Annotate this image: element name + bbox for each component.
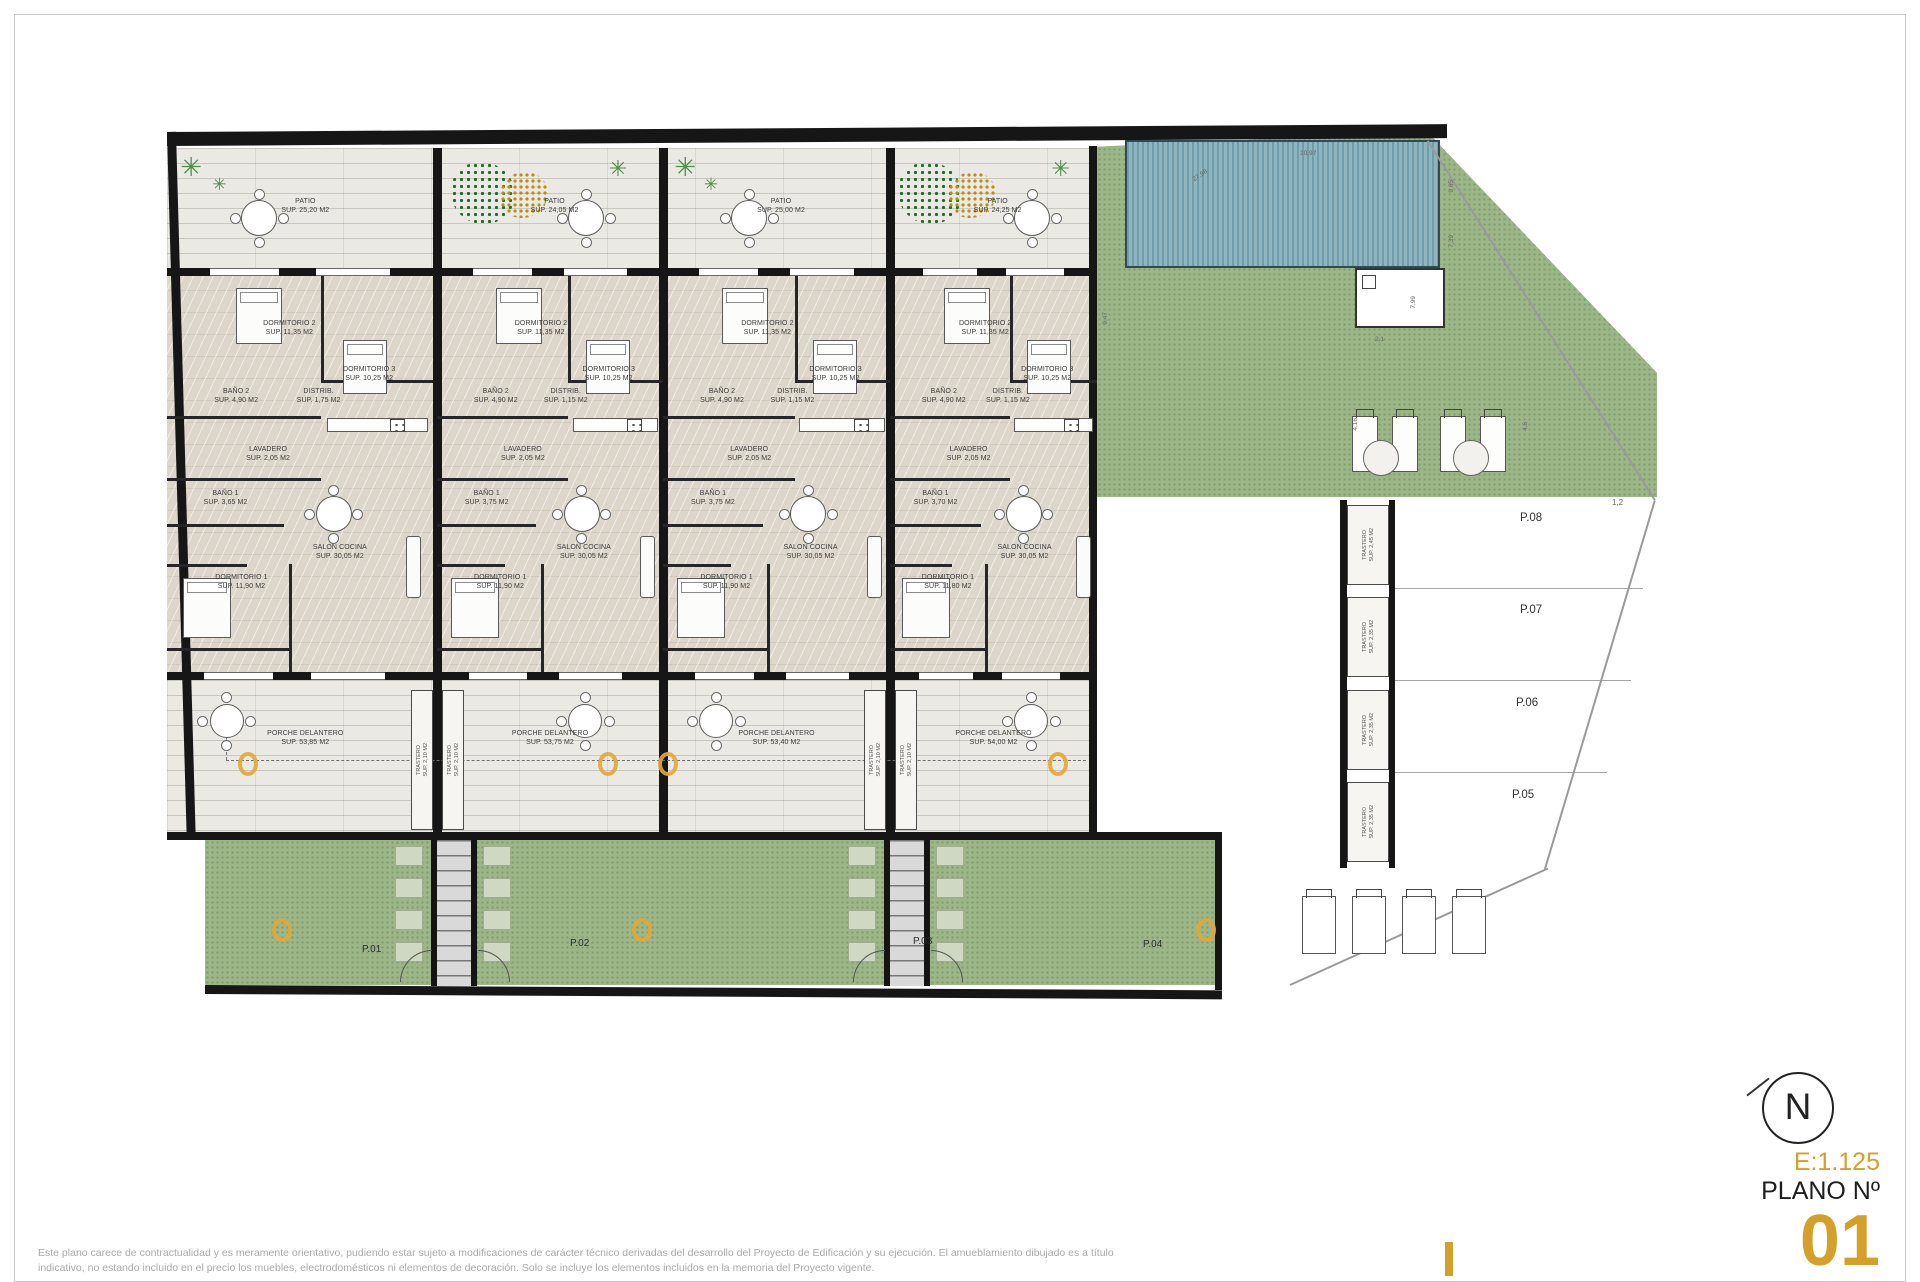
hob-icon [390,419,405,432]
hob-icon [627,419,642,432]
room-name: PATIO [281,198,329,207]
window [1002,672,1060,680]
garden-light-icon [1196,918,1216,942]
stepping-stone [395,846,423,866]
room-sup: SUP. 30,05 M2 [997,553,1051,562]
room-name: SALON COCINA [557,544,611,553]
room-sup: SUP. 4,90 M2 [214,397,258,406]
room-sup: SUP. 11,35 M2 [263,329,315,338]
sofa-icon [1076,536,1091,598]
stepping-stone [483,878,511,898]
trastero-label: TRASTERO [416,745,422,775]
kitchen-counter-icon [327,418,428,432]
dim-label: 7,39 [1448,235,1455,248]
stepping-stone [848,878,876,898]
trastero-sup: SUP. 2,35 M2 [1369,620,1375,654]
parking-spot-label: P.08 [1520,512,1542,524]
unit-p02: ✳ PATIOSUP. 24,05 M2 DORMITORIO 2SUP. 11… [437,148,663,832]
room-sup: SUP. 11,35 M2 [515,329,567,338]
window [919,672,973,680]
trastero-cell: TRASTEROSUP. 2,10 M2 [442,690,464,830]
logo-bar [1445,1242,1453,1276]
palm-icon: ✳ [674,154,696,180]
plot-wall-bottom [205,985,1222,999]
compass-north-icon: N [1762,1072,1834,1144]
scale-label: E:1.125 [1660,1148,1880,1177]
room-sup: SUP. 1,75 M2 [297,397,341,406]
parking-row-line [1395,588,1643,589]
garden-light-icon [632,918,652,942]
room-sup: SUP. 11,90 M2 [700,583,752,592]
room-sup: SUP. 10,25 M2 [809,375,861,384]
palm-icon: ✳ [704,176,718,193]
dim-label: 10,97 [1300,150,1317,158]
trastero-cell: TRASTEROSUP. 2,35 M2 [1347,597,1389,677]
palm-icon: ✳ [609,158,627,180]
stepping-stone [848,910,876,930]
room-name: LAVADERO [947,446,991,455]
room-sup: SUP. 2,05 M2 [947,455,991,464]
room-name: PORCHE DELANTERO [955,730,1031,739]
room-name: BAÑO 2 [922,388,966,397]
room-name: BAÑO 2 [214,388,258,397]
room-sup: SUP. 2,05 M2 [246,455,290,464]
room-sup: SUP. 4,90 M2 [474,397,518,406]
room-name: LAVADERO [501,446,545,455]
room-name: DISTRIB. [770,388,814,397]
stepping-stone [483,910,511,930]
room-sup: SUP. 54,00 M2 [955,739,1031,748]
room-sup: SUP. 10,25 M2 [583,375,635,384]
trastero-label: TRASTERO [1362,530,1368,560]
trastero-label: TRASTERO [900,745,906,775]
plano-number: 01 [1660,1206,1880,1276]
window [311,672,385,680]
garden-light-icon [598,752,618,776]
sofa-icon [867,536,882,598]
room-name: SALON COCINA [997,544,1051,553]
room-sup: SUP. 11,35 M2 [741,329,793,338]
palm-icon: ✳ [180,154,202,180]
parking-spot-label: P.07 [1520,604,1542,616]
room-sup: SUP. 2,05 M2 [501,455,545,464]
stepping-stone [483,846,511,866]
trastero-label: TRASTERO [1362,807,1368,837]
trastero-label: TRASTERO [869,745,875,775]
trastero-sup: SUP. 2,10 M2 [907,743,913,777]
room-sup: SUP. 25,20 M2 [281,207,329,216]
room-sup: SUP. 1,15 M2 [770,397,814,406]
dim-label: 4,16 [1352,418,1359,431]
garden-band [205,840,1222,985]
room-sup: SUP. 24,05 M2 [531,207,579,216]
room-sup: SUP. 11,90 M2 [474,583,526,592]
trastero-cell: TRASTEROSUP. 2,35 M2 [1347,782,1389,862]
parking-stall-icon [1402,896,1436,954]
plot-label: P.02 [570,938,589,949]
room-name: DORMITORIO 3 [1021,366,1073,375]
stepping-stone [395,878,423,898]
garden-wall [167,832,1222,840]
room-sup: SUP. 24,25 M2 [974,207,1022,216]
trastero-sup: SUP. 2,10 M2 [454,743,460,777]
trastero-sup: SUP. 2,10 M2 [876,743,882,777]
trastero-label: TRASTERO [447,745,453,775]
tech-room-box [1362,275,1376,289]
window [559,672,622,680]
parking-row-line [1395,772,1607,773]
window [699,268,758,276]
trastero-cell: TRASTEROSUP. 2,45 M2 [1347,505,1389,585]
unit-p04: ✳ PATIOSUP. 24,25 M2 DORMITORIO 2SUP. 11… [890,148,1097,832]
trastero-cell: TRASTEROSUP. 2,10 M2 [411,690,433,830]
room-sup: SUP. 30,05 M2 [313,553,367,562]
room-sup: SUP. 30,05 M2 [557,553,611,562]
room-sup: SUP. 11,35 M2 [959,329,1011,338]
room-name: BAÑO 1 [691,490,735,499]
window [1006,268,1064,276]
hob-icon [854,419,869,432]
room-name: DORMITORIO 1 [922,574,974,583]
room-name: BAÑO 1 [204,490,248,499]
floor-plan: ✳ ✳ PATIOSUP. 25,20 M2 DORMITORIO 2SUP. … [0,0,1920,1280]
room-name: DISTRIB. [986,388,1030,397]
dining-table-icon [316,496,352,532]
stepping-stone [936,846,964,866]
room-sup: SUP. 53,40 M2 [738,739,814,748]
room-sup: SUP. 10,25 M2 [343,375,395,384]
room-name: BAÑO 2 [700,388,744,397]
palm-icon: ✳ [212,176,226,193]
trastero-label: TRASTERO [1362,715,1368,745]
room-sup: SUP. 30,05 M2 [783,553,837,562]
room-name: DORMITORIO 1 [474,574,526,583]
parking-row-line [1395,680,1631,681]
room-name: DORMITORIO 2 [959,320,1011,329]
terrace-dashed-line [226,760,1086,761]
room-name: DORMITORIO 2 [515,320,567,329]
parking-stall-icon [1302,896,1336,954]
dim-label: 7,99 [1410,296,1417,309]
disclaimer-line1: Este plano carece de contractualidad y e… [38,1246,1114,1261]
dim-label: 2,1 [1375,336,1384,343]
room-sup: SUP. 1,15 M2 [986,397,1030,406]
room-sup: SUP. 3,75 M2 [465,499,509,508]
sofa-icon [406,536,421,598]
dining-table-icon [790,496,826,532]
dim-label: 1,2 [1612,498,1623,507]
window [316,268,390,276]
title-block: E:1.125 PLANO Nº 01 [1660,1148,1880,1276]
sofa-icon [640,536,655,598]
room-sup: SUP. 4,90 M2 [922,397,966,406]
room-name: PATIO [757,198,805,207]
north-label: N [1785,1086,1812,1127]
room-name: DORMITORIO 2 [263,320,315,329]
room-sup: SUP. 11,90 M2 [215,583,267,592]
plot-boundary-line [1544,501,1655,870]
room-name: PATIO [531,198,579,207]
room-name: SALON COCINA [313,544,367,553]
kitchen-counter-icon [573,418,659,432]
trastero-label: TRASTERO [1362,622,1368,652]
dim-label: 4,6 [1522,422,1529,431]
room-sup: SUP. 3,70 M2 [914,499,958,508]
porch-table-icon [210,704,244,738]
room-sup: SUP. 3,75 M2 [691,499,735,508]
trastero-cell: TRASTEROSUP. 2,10 M2 [895,690,917,830]
palm-icon: ✳ [1051,158,1069,180]
trastero-sup: SUP. 2,35 M2 [1369,713,1375,747]
room-name: LAVADERO [246,446,290,455]
room-name: LAVADERO [727,446,771,455]
plot-label: P.03 [913,936,932,947]
window [204,672,273,680]
parking-stall-icon [1452,896,1486,954]
room-sup: SUP. 53,85 M2 [267,739,343,748]
garden-light-icon [658,752,678,776]
room-sup: SUP. 53,75 M2 [512,739,588,748]
trastero-sup: SUP. 2,45 M2 [1369,528,1375,562]
stepping-stone [936,878,964,898]
stepping-stone [395,910,423,930]
window [469,672,528,680]
room-name: SALON COCINA [783,544,837,553]
room-name: PORCHE DELANTERO [738,730,814,739]
garden-light-icon [238,752,258,776]
room-name: PORCHE DELANTERO [512,730,588,739]
room-sup: SUP. 4,90 M2 [700,397,744,406]
room-sup: SUP. 10,25 M2 [1021,375,1073,384]
trastero-cell: TRASTEROSUP. 2,10 M2 [864,690,886,830]
room-sup: SUP. 3,65 M2 [204,499,248,508]
plot-label: P.04 [1143,939,1162,950]
dining-table-icon [564,496,600,532]
window [786,672,850,680]
swimming-pool [1125,140,1440,268]
window [564,268,627,276]
unit-p01: ✳ ✳ PATIOSUP. 25,20 M2 DORMITORIO 2SUP. … [167,148,433,832]
room-sup: SUP. 1,15 M2 [544,397,588,406]
window [473,268,532,276]
room-name: PATIO [974,198,1022,207]
disclaimer-text: Este plano carece de contractualidad y e… [38,1246,1114,1276]
dining-table-icon [1006,496,1042,532]
garden-light-icon [1048,752,1068,776]
parasol-icon [1453,440,1489,476]
room-name: DORMITORIO 3 [583,366,635,375]
stepping-stone [936,910,964,930]
stairs-icon [884,840,930,986]
trastero-cell: TRASTEROSUP. 2,35 M2 [1347,690,1389,770]
room-sup: SUP. 11,80 M2 [922,583,974,592]
kitchen-counter-icon [799,418,885,432]
room-name: DORMITORIO 2 [741,320,793,329]
pool-tech-room [1355,268,1445,328]
garden-light-icon [272,918,292,942]
room-name: DORMITORIO 1 [215,574,267,583]
trastero-sup: SUP. 2,10 M2 [423,743,429,777]
disclaimer-line2: indicativo, no estando incluido en el pr… [38,1261,1114,1276]
window [695,672,754,680]
parking-spot-label: P.05 [1512,789,1534,801]
room-name: BAÑO 1 [465,490,509,499]
parking-spot-label: P.06 [1516,697,1538,709]
kitchen-counter-icon [1014,418,1093,432]
parking-left-wall [1340,500,1347,868]
hob-icon [1064,419,1079,432]
room-name: BAÑO 1 [914,490,958,499]
stairs-icon [431,840,477,986]
plot-label: P.01 [362,944,381,955]
dim-label: 9,47 [1102,312,1109,325]
room-name: DORMITORIO 1 [700,574,752,583]
room-name: PORCHE DELANTERO [267,730,343,739]
room-name: DISTRIB. [544,388,588,397]
parasol-icon [1363,440,1399,476]
unit-p03: ✳ ✳ PATIOSUP. 25,00 M2 DORMITORIO 2SUP. … [663,148,890,832]
room-name: BAÑO 2 [474,388,518,397]
garden-wall-right [1215,840,1222,990]
stepping-stone [848,846,876,866]
parking-divider-wall [1389,500,1395,868]
dim-label: 9,65 [1448,180,1455,193]
patio-table-icon [241,200,277,236]
room-name: DISTRIB. [297,388,341,397]
parking-stall-icon [1352,896,1386,954]
room-name: DORMITORIO 3 [809,366,861,375]
window [923,268,977,276]
room-name: DORMITORIO 3 [343,366,395,375]
room-sup: SUP. 2,05 M2 [727,455,771,464]
porch-table-icon [699,704,733,738]
room-sup: SUP. 25,00 M2 [757,207,805,216]
window [790,268,854,276]
trastero-sup: SUP. 2,35 M2 [1369,805,1375,839]
window [210,268,279,276]
